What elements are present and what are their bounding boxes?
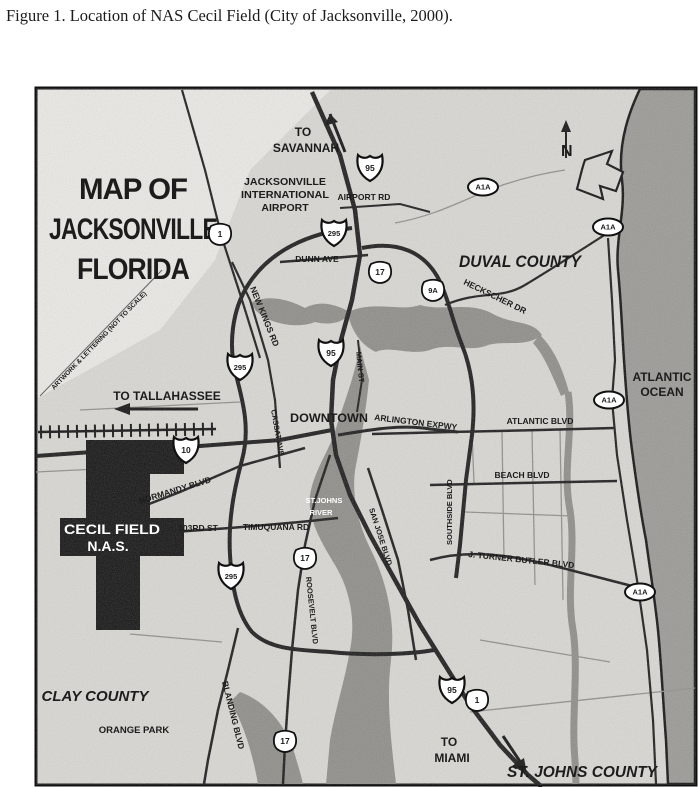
ocean-line2: OCEAN (640, 385, 683, 399)
i10-shield-number: 10 (181, 445, 191, 455)
dunn-ave-label: DUNN AVE (295, 254, 339, 264)
st-johns-county-label: ST. JOHNS COUNTY (507, 764, 658, 781)
jacksonville-map: MAP OF JACKSONVILLE FLORIDA TO SAVANNAH … (0, 0, 700, 787)
airport-line3: AIRPORT (261, 202, 309, 214)
southside-blvd-label: SOUTHSIDE BLVD (445, 479, 454, 545)
us1-shield-north: 1 (209, 224, 231, 245)
i95-shield-south-number: 95 (447, 685, 457, 695)
a1a-shield-3-number: A1A (601, 396, 617, 405)
103rd-st-label: 103RD ST (178, 523, 218, 533)
cecil-line1: CECIL FIELD (64, 521, 160, 537)
a1a-shield-2-number: A1A (600, 223, 616, 232)
sr9a-shield: 9A (422, 280, 444, 301)
us17-shield-south: 17 (274, 731, 296, 752)
airport-line2: INTERNATIONAL (241, 189, 330, 201)
i95-shield-north-number: 95 (365, 163, 375, 173)
to-savannah-line2: SAVANNAH (273, 141, 339, 155)
beach-blvd-label: BEACH BLVD (494, 470, 549, 480)
sr9a-shield-number: 9A (428, 286, 438, 295)
a1a-shield-3: A1A (594, 392, 624, 409)
a1a-shield-4-number: A1A (632, 588, 648, 597)
to-tallahassee-label: TO TALLAHASSEE (113, 389, 221, 403)
i295-shield-airport-number: 295 (328, 229, 341, 238)
us1-shield-south: 1 (466, 690, 488, 711)
us17-shield-mid: 17 (294, 548, 316, 569)
title-line-3: FLORIDA (77, 253, 189, 286)
a1a-shield-4: A1A (625, 584, 655, 601)
ocean-line1: ATLANTIC (632, 370, 691, 384)
miami-line2: MIAMI (434, 751, 469, 765)
river-line1: ST.JOHNS (306, 496, 343, 505)
us17-shield-north-number: 17 (375, 267, 385, 277)
us1-shield-south-number: 1 (475, 695, 480, 705)
atlantic-blvd-label: ATLANTIC BLVD (507, 416, 574, 426)
us17-shield-mid-number: 17 (300, 553, 310, 563)
title-line-2: JACKSONVILLE (49, 213, 217, 246)
compass-n-label: N (561, 143, 573, 160)
miami-line1: TO (441, 735, 457, 749)
cecil-line2: N.A.S. (87, 538, 128, 554)
airport-rd-label: AIRPORT RD (338, 192, 391, 202)
i295-shield-west-number: 295 (234, 363, 247, 372)
i95-shield-downtown-number: 95 (326, 348, 336, 358)
orange-park-label: ORANGE PARK (99, 725, 170, 736)
a1a-shield-2: A1A (593, 219, 623, 236)
us17-shield-north: 17 (369, 262, 391, 283)
river-line2: RIVER (310, 508, 334, 517)
a1a-shield-1: A1A (468, 179, 498, 196)
duval-county-label: DUVAL COUNTY (459, 252, 583, 271)
clay-county-label: CLAY COUNTY (42, 688, 151, 705)
to-savannah-line1: TO (295, 125, 311, 139)
downtown-label: DOWNTOWN (290, 411, 368, 425)
title-line-1: MAP OF (79, 173, 188, 206)
atlantic-ocean-label: ATLANTIC OCEAN (632, 370, 691, 399)
us1-shield-north-number: 1 (218, 229, 223, 239)
i295-shield-south-number: 295 (225, 572, 238, 581)
airport-line1: JACKSONVILLE (244, 176, 326, 188)
a1a-shield-1-number: A1A (475, 183, 491, 192)
us17-shield-south-number: 17 (280, 736, 290, 746)
timuquana-rd-label: TIMUQUANA RD (243, 522, 309, 532)
